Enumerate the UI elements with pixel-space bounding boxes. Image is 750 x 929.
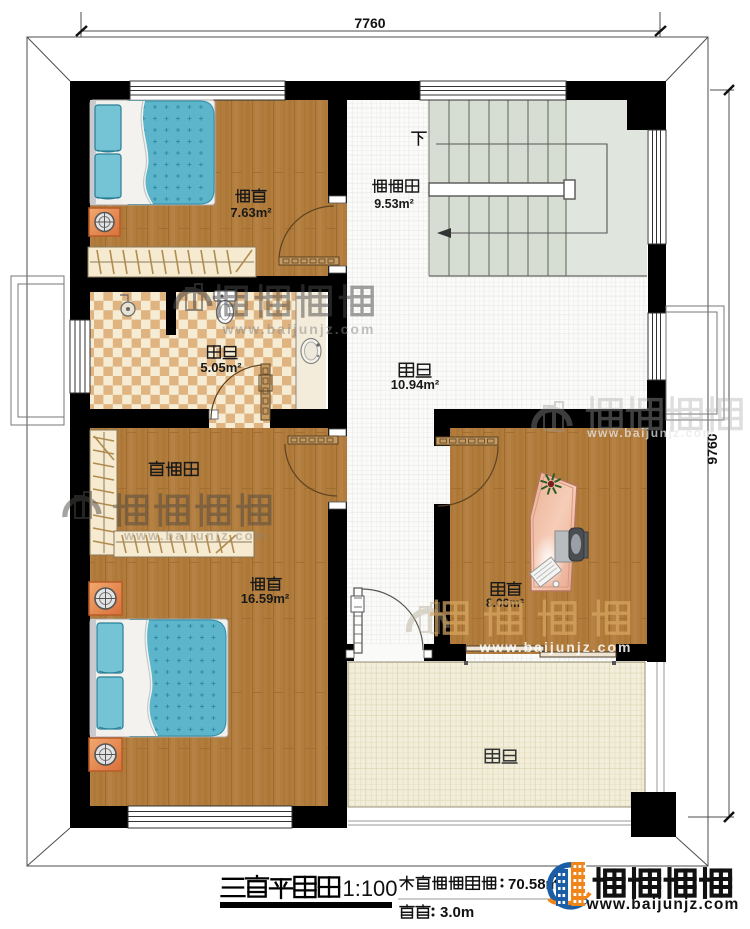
svg-text:www.baijunjz.com: www.baijunjz.com — [123, 528, 268, 543]
svg-text:3.0m: 3.0m — [440, 904, 474, 921]
svg-text:7.63m²: 7.63m² — [230, 205, 272, 220]
svg-text:www.baijunjz.com: www.baijunjz.com — [586, 896, 740, 913]
svg-text:www.baijunjz.com: www.baijunjz.com — [479, 639, 633, 655]
svg-text:16.59m²: 16.59m² — [241, 591, 290, 606]
svg-text:9.53m²: 9.53m² — [374, 197, 414, 211]
svg-text:1:100: 1:100 — [342, 876, 397, 901]
svg-text:www.baijunjz.com: www.baijunjz.com — [586, 426, 715, 440]
svg-text:5.05m²: 5.05m² — [200, 360, 242, 375]
svg-text:7760: 7760 — [354, 15, 385, 31]
svg-text:10.94m²: 10.94m² — [391, 377, 440, 392]
svg-text:www.baijunjz.com: www.baijunjz.com — [222, 321, 376, 337]
